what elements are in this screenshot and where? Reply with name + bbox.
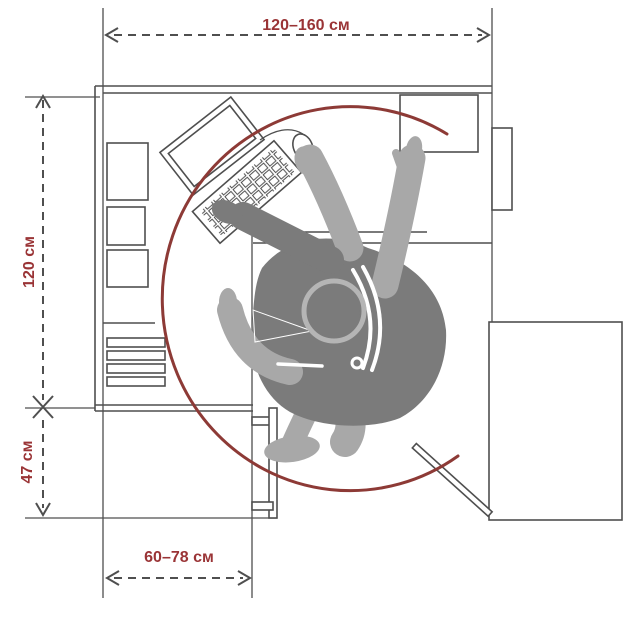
open-door-panel [412,444,492,517]
diagram-canvas: 120–160 см 120 см 47 см 60–78 см [0,0,640,640]
side-cabinet [489,322,622,520]
thumb [396,153,402,170]
dimension-bottom: 60–78 см [107,549,250,585]
chair-seam [278,364,322,366]
dimension-top-label: 120–160 см [262,17,349,34]
drawer-slats [107,338,165,386]
dimension-top: 120–160 см [106,17,489,42]
side-shelves [103,143,165,386]
head [308,285,360,337]
dimension-bottom-label: 60–78 см [144,549,214,566]
dimension-left-upper-label: 120 см [21,236,38,288]
arm-reaching [385,158,412,285]
dimension-left-upper: 120 см [21,96,53,418]
hand-bent [219,288,237,316]
arm-on-keyboard [243,216,330,260]
ergonomics-plan-diagram: 120–160 см 120 см 47 см 60–78 см [0,0,640,640]
side-unit [492,128,512,210]
dimension-left-lower-label: 47 см [19,441,36,484]
arm-to-mouse [310,158,350,248]
dimension-left-lower: 47 см [19,420,50,515]
